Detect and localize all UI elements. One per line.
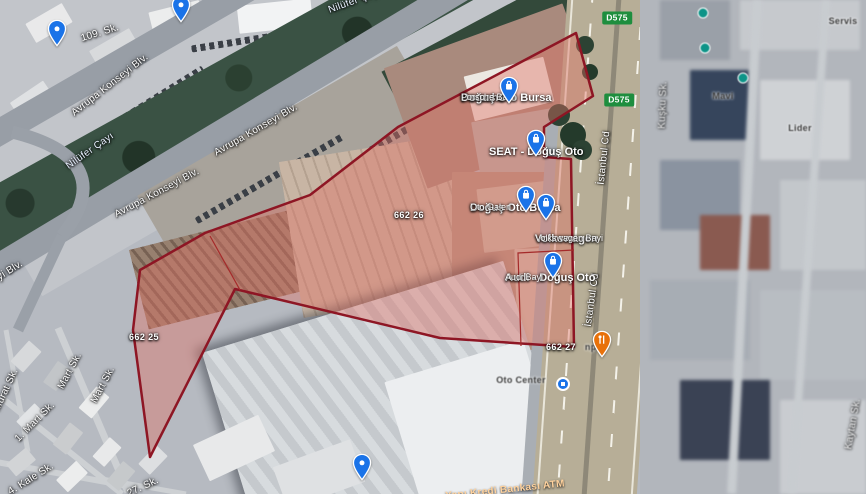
- shopping-pin-volkswagen[interactable]: [536, 193, 556, 221]
- satellite-map-canvas[interactable]: 109. Sk. Avrupa Konseyi Blv. Avrupa Kons…: [0, 0, 866, 494]
- poi-subtitle: Audi Bayi: [505, 272, 543, 282]
- park-poi-dot[interactable]: [698, 8, 709, 19]
- poi-label-oto-center[interactable]: Oto Center: [496, 375, 546, 385]
- poi-glyph: [561, 382, 565, 386]
- parcel-number: 662 27: [546, 342, 576, 352]
- place-pin[interactable]: [47, 19, 67, 47]
- small-label: Lider: [788, 123, 812, 133]
- park-poi-dot[interactable]: [738, 73, 749, 84]
- shopping-pin-dogus-oto[interactable]: [516, 185, 536, 213]
- poi-subtitle: Volkswagen Bayi: [535, 233, 603, 243]
- shopping-pin-porsche[interactable]: [499, 76, 519, 104]
- business-poi-dot[interactable]: [556, 377, 570, 391]
- place-pin[interactable]: [352, 453, 372, 481]
- highway-shield: D575: [604, 94, 634, 107]
- shopping-pin-seat[interactable]: [526, 129, 546, 157]
- small-label: Servis: [829, 16, 858, 26]
- park-poi-dot[interactable]: [700, 43, 711, 54]
- shopping-pin-audi[interactable]: [543, 251, 563, 279]
- small-label: Mavi: [712, 91, 733, 101]
- highway-shield: D575: [602, 12, 632, 25]
- parcel-number: 662 25: [129, 332, 159, 342]
- restaurant-pin[interactable]: [592, 330, 612, 358]
- parcel-number: 662 26: [394, 210, 424, 220]
- place-pin[interactable]: [171, 0, 191, 23]
- poi-subtitle: Oto Galeri: [470, 202, 511, 212]
- street-label: Kuşku Sk.: [657, 81, 670, 129]
